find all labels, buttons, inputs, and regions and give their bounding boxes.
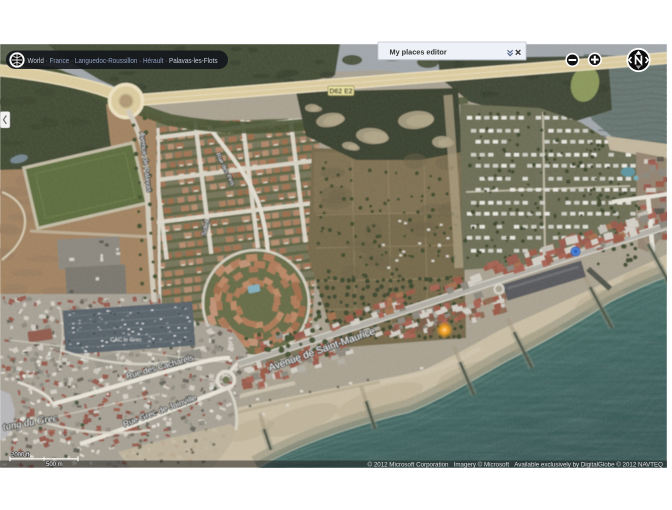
- svg-text:World · France · Languedoc-Rou: World · France · Languedoc-Roussillon · …: [28, 58, 218, 65]
- svg-text:My places editor: My places editor: [390, 47, 447, 56]
- svg-text:500 m: 500 m: [46, 462, 63, 468]
- svg-text:© 2012 Microsoft Corporation: © 2012 Microsoft Corporation Imagery © M…: [368, 461, 664, 468]
- svg-text:2000 ft: 2000 ft: [11, 453, 30, 459]
